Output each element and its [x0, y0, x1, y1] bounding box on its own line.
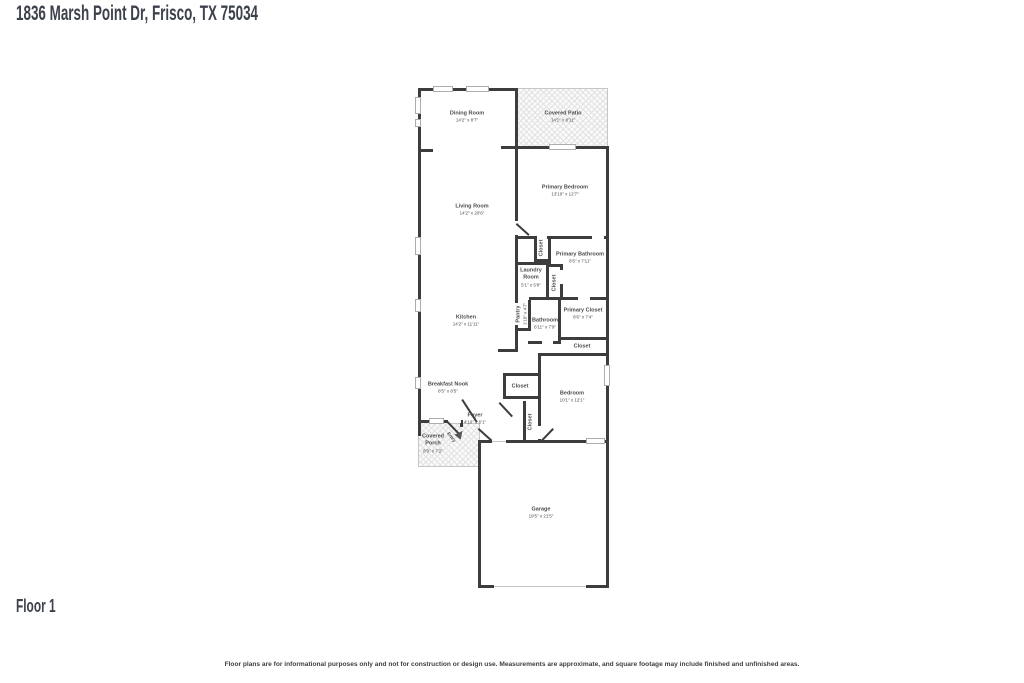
room-label-covered-porch: Covered Porch 8'9" x 7'2": [419, 434, 447, 455]
room-dims: 6'11" x 7'9": [532, 325, 558, 331]
room-label-kitchen: Kitchen 14'2" x 11'11": [453, 314, 480, 327]
address-title: 1836 Marsh Point Dr, Frisco, TX 75034: [16, 2, 258, 26]
room-dims: 14'2" x 8'7": [450, 118, 484, 124]
room-label-closet-bedroom: Closet: [538, 240, 545, 257]
room-name: Closet: [551, 275, 558, 292]
room-name: Closet: [512, 383, 529, 390]
room-dims: 8'6" x 7'4": [564, 315, 603, 321]
room-dims: 14'2" x 20'6": [455, 211, 488, 217]
room-label-closet-coat: Closet: [527, 414, 534, 431]
room-name: Closet: [527, 414, 534, 431]
window: [415, 237, 421, 255]
room-dims: 14'1" x 8'11": [545, 118, 582, 124]
room-label-garage: Garage 19'5" x 21'5": [529, 506, 554, 519]
window: [415, 299, 421, 312]
patio-edge: [607, 88, 608, 147]
room-label-closet-under-primary: Closet: [574, 343, 591, 350]
room-name: Bathroom: [532, 317, 558, 324]
room-name: Closet: [538, 240, 545, 257]
room-label-primary-closet: Primary Closet 8'6" x 7'4": [564, 307, 603, 320]
wall-segment: [515, 88, 518, 149]
door-swing: [499, 402, 513, 417]
room-dims: 8'9" x 7'2": [419, 448, 447, 454]
room-name: Primary Bedroom: [542, 184, 588, 191]
room-dims: 1'10" x 4'7": [523, 303, 529, 325]
window: [586, 438, 605, 444]
window: [429, 418, 444, 424]
porch-edge: [418, 466, 480, 467]
patio-edge: [518, 88, 608, 89]
door-opening: [592, 236, 604, 239]
window: [415, 97, 421, 114]
room-dims: 13'10" x 12'7": [542, 192, 588, 198]
window: [466, 86, 489, 92]
door-opening: [542, 341, 553, 344]
room-dims: 10'1" x 12'1": [560, 398, 585, 404]
room-name: Dining Room: [450, 110, 484, 117]
wall-segment: [503, 396, 538, 399]
room-name: Covered Porch: [419, 434, 447, 449]
wall-segment: [503, 373, 538, 376]
room-name: Primary Closet: [564, 307, 603, 314]
room-name: Breakfast Nook: [428, 381, 468, 388]
room-label-closet-bath: Closet: [551, 275, 558, 292]
room-label-primary-bedroom: Primary Bedroom 13'10" x 12'7": [542, 184, 588, 197]
door-opening: [578, 297, 590, 300]
room-name: Bedroom: [560, 390, 585, 397]
room-name: Foyer: [464, 412, 486, 419]
room-name: Living Room: [455, 203, 488, 210]
wall-segment: [560, 337, 609, 340]
room-label-breakfast-nook: Breakfast Nook 8'5" x 8'5": [428, 381, 468, 394]
room-name: Covered Patio: [545, 110, 582, 117]
room-name: Closet: [574, 343, 591, 350]
room-dims: 8'5" x 7'11": [556, 259, 604, 265]
room-dims: 14'2" x 11'11": [453, 322, 480, 328]
door-opening: [538, 426, 541, 439]
window: [415, 119, 421, 127]
room-label-living: Living Room 14'2" x 20'6": [455, 203, 488, 216]
room-label-laundry: Laundry Room 5'1" x 5'8": [518, 268, 544, 289]
window: [604, 365, 610, 386]
room-label-primary-bathroom: Primary Bathroom 8'5" x 7'11": [556, 251, 604, 264]
floor-plan-page: 1836 Marsh Point Dr, Frisco, TX 75034 Fl…: [0, 0, 1024, 683]
wall-segment: [503, 373, 506, 399]
room-label-covered-patio: Covered Patio 14'1" x 8'11": [545, 110, 582, 123]
room-dims: 19'5" x 21'5": [529, 514, 554, 520]
wall-segment: [546, 262, 549, 300]
room-label-bedroom: Bedroom 10'1" x 12'1": [560, 390, 585, 403]
window: [549, 144, 576, 150]
disclaimer-text: Floor plans are for informational purpos…: [0, 661, 1024, 668]
room-label-closet-hall: Closet: [512, 383, 529, 390]
wall-segment: [515, 328, 531, 331]
door-opening: [560, 270, 563, 284]
floor-label: Floor 1: [16, 596, 56, 617]
window: [433, 86, 453, 92]
garage-door-line: [494, 586, 586, 587]
room-name: Kitchen: [453, 314, 480, 321]
wall-segment: [498, 349, 518, 352]
window: [415, 377, 421, 389]
room-name: Garage: [529, 506, 554, 513]
room-label-dining: Dining Room 14'2" x 8'7": [450, 110, 484, 123]
room-label-foyer: Foyer 4'10" x 6'1": [464, 412, 486, 425]
room-dims: 4'10" x 6'1": [464, 420, 486, 426]
room-label-bathroom: Bathroom 6'11" x 7'9": [532, 317, 558, 330]
room-dims: 8'5" x 8'5": [428, 389, 468, 395]
wall-segment: [418, 149, 433, 152]
wall-segment: [523, 401, 526, 442]
door-opening: [518, 297, 529, 300]
room-name: Laundry Room: [518, 268, 544, 283]
room-name: Primary Bathroom: [556, 251, 604, 258]
door-threshold: [492, 441, 506, 442]
room-name: Pantry: [515, 303, 522, 325]
wall-segment: [478, 440, 481, 588]
room-label-pantry: Pantry 1'10" x 4'7": [515, 303, 528, 325]
room-dims: 5'1" x 5'8": [518, 282, 544, 288]
wall-segment: [538, 353, 609, 356]
